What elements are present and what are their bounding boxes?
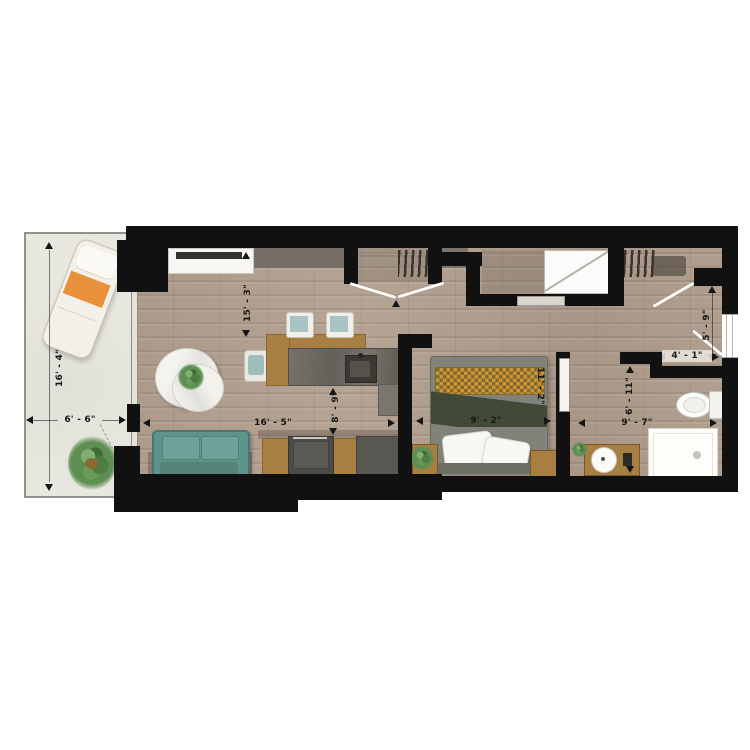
kitchen-top-counter (252, 248, 356, 268)
bed-base (433, 463, 545, 473)
dimline-balcony-w1 (32, 420, 58, 421)
vanity-plant (572, 442, 587, 457)
dim-arrow (544, 417, 551, 425)
kitchen-sink (345, 355, 377, 383)
dim-bedroom-height: 11' - 2" (534, 361, 546, 411)
toilet-seat (683, 397, 706, 413)
dimline-balcony-h (49, 250, 50, 482)
sofa-cushion-right (201, 436, 239, 460)
dim-balcony-height: 16' - 4" (54, 338, 66, 398)
dim-kitchen-depth: 8' - 9" (330, 382, 342, 432)
dim-hall-height: 5' - 9" (701, 300, 713, 350)
dim-arrow (119, 416, 126, 424)
tv (176, 252, 242, 259)
wall-right-upper (722, 226, 738, 314)
bar-stool-seat (330, 316, 348, 332)
balcony-plant (68, 436, 116, 490)
dim-arrow (712, 353, 719, 361)
stove-top (293, 441, 329, 469)
island-counter-leg (378, 384, 400, 416)
dim-arrow (578, 419, 585, 427)
wall-bottom-mid (296, 474, 442, 500)
wall-hall-step-b (650, 366, 728, 378)
hall-closet-shelf (652, 256, 686, 276)
walkin-shade (482, 250, 544, 294)
wall-bedroom-divider (398, 334, 412, 478)
closet-sliding-door (517, 296, 565, 306)
window-opening (722, 314, 738, 358)
island-bar-side (266, 334, 290, 386)
wall-closet-right-stub (608, 240, 624, 306)
bedroom-pocket-door (559, 358, 570, 412)
vanity-sink-drain (601, 457, 605, 461)
stove-handle (293, 437, 327, 439)
bar-stool-1 (286, 312, 314, 338)
glass-door-post-mid (127, 404, 140, 432)
wall-bedroom-stub (398, 334, 432, 348)
dim-bath-width: 9' - 7" (611, 417, 663, 429)
dim-arrow (143, 419, 150, 427)
dim-bath-height: 6' - 11" (624, 368, 636, 424)
stove (288, 436, 334, 478)
dim-living-width: 16' - 5" (245, 417, 301, 429)
side-chair-seat (248, 355, 264, 375)
table-plant (178, 364, 204, 390)
dim-balcony-width: 6' - 6" (56, 414, 104, 426)
closet-unit-diagonal (544, 249, 610, 291)
vanity-accessory (623, 453, 632, 466)
dim-arrow (45, 242, 53, 249)
sink-basin (350, 361, 370, 377)
wall-top (126, 226, 738, 248)
bar-stool-2 (326, 312, 354, 338)
dim-arrow (242, 252, 250, 259)
bed-checker-blanket (435, 367, 545, 395)
dim-living-height: 15' - 3" (242, 273, 254, 333)
nightstand-right (530, 450, 558, 478)
fridge (356, 436, 402, 478)
floor-plan: 16' - 4" 6' - 6" 15' - 3" 16' - 5" 8' - … (0, 0, 750, 750)
closet-unit (544, 250, 612, 294)
sofa-cushion-left (162, 436, 200, 460)
island-counter (288, 348, 400, 386)
sink-faucet (358, 353, 363, 358)
wall-bottom-right (440, 476, 738, 492)
entry-tick (392, 300, 400, 307)
lounge-seam (57, 306, 97, 322)
shower-pan (653, 433, 713, 479)
dim-arrow (26, 416, 33, 424)
dim-hall-width: 4' - 1" (662, 350, 712, 362)
dim-arrow (710, 419, 717, 427)
wall-corner-topleft (117, 240, 168, 292)
plant-pot (85, 458, 98, 469)
glass-door-post-top (127, 266, 140, 292)
wall-entry-stub-left (344, 246, 358, 284)
dim-arrow (708, 286, 716, 293)
glass-door-post-bottom (127, 458, 140, 476)
dim-bedroom-width: 9' - 2" (458, 415, 514, 427)
dim-arrow (388, 419, 395, 427)
nightstand-plant (410, 446, 434, 470)
dim-arrow (626, 466, 634, 473)
wall-bottom-left (114, 474, 298, 512)
shower-drain (693, 451, 701, 459)
bar-stool-seat (290, 316, 308, 332)
dim-arrow (45, 484, 53, 491)
toilet (676, 390, 724, 418)
hall-hanging-clothes (624, 250, 656, 277)
dim-arrow (416, 417, 423, 425)
